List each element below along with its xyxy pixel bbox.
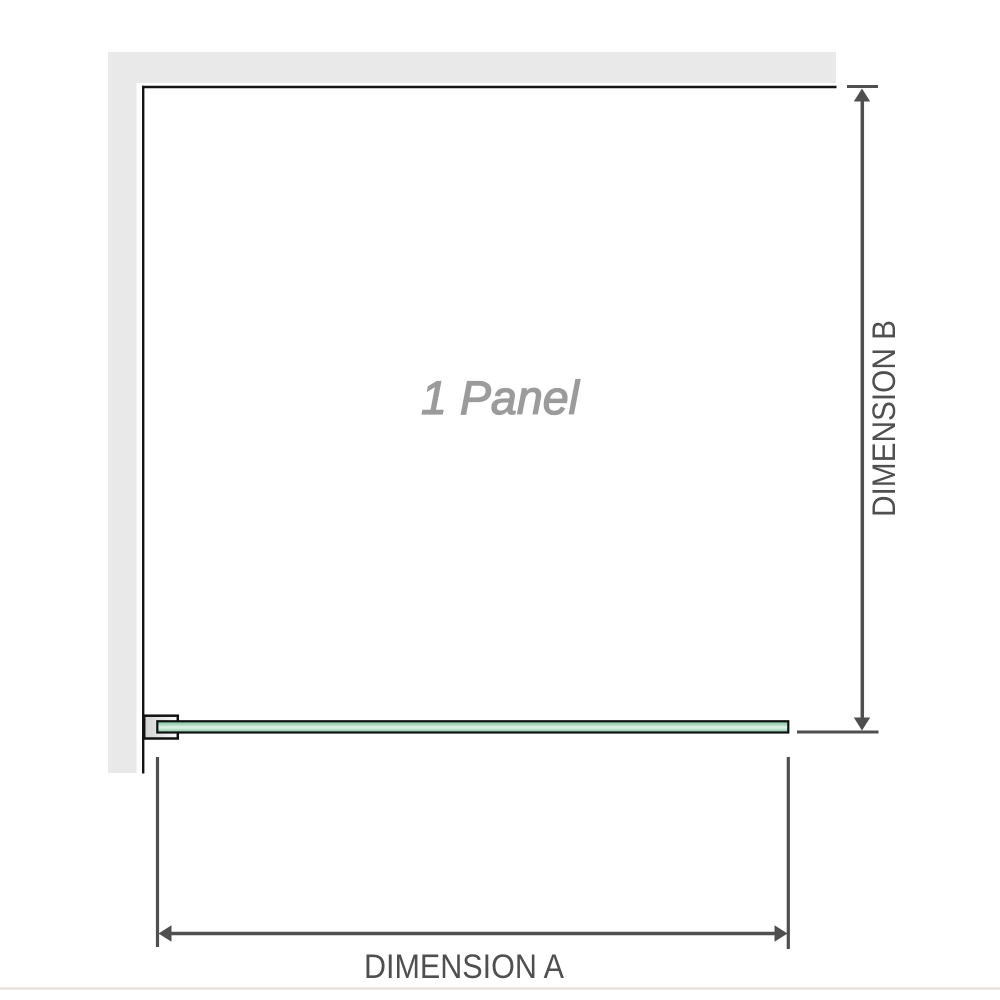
svg-text:DIMENSION B: DIMENSION B (866, 320, 902, 517)
svg-text:DIMENSION A: DIMENSION A (364, 948, 564, 986)
svg-text:1 Panel: 1 Panel (421, 372, 580, 425)
